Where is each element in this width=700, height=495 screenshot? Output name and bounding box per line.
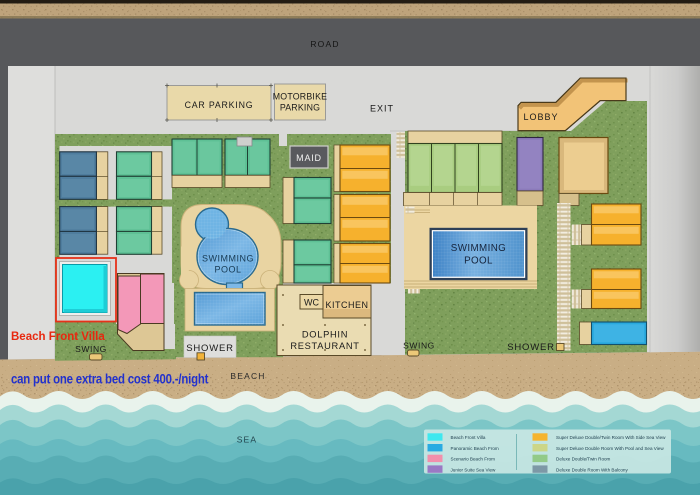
svg-text:DOLPHIN: DOLPHIN bbox=[302, 330, 348, 340]
svg-text:WC: WC bbox=[304, 298, 319, 308]
svg-text:Deluxe Double Room With Balcon: Deluxe Double Room With Balcony bbox=[556, 467, 628, 472]
svg-text:Super Deluxe Double/Twin Room: Super Deluxe Double/Twin Room With Side … bbox=[556, 435, 666, 440]
svg-text:LOBBY: LOBBY bbox=[523, 112, 558, 122]
svg-text:SHOWER: SHOWER bbox=[186, 343, 234, 354]
svg-text:Panoramic Beach From: Panoramic Beach From bbox=[451, 446, 499, 451]
svg-text:EXIT: EXIT bbox=[370, 104, 394, 114]
svg-text:SWING: SWING bbox=[403, 341, 435, 351]
svg-text:SWING: SWING bbox=[75, 344, 107, 354]
svg-text:Junior Suite Sea View: Junior Suite Sea View bbox=[451, 467, 497, 472]
svg-text:BEACH: BEACH bbox=[230, 371, 265, 381]
svg-text:KITCHEN: KITCHEN bbox=[325, 300, 368, 310]
svg-text:SHOWER: SHOWER bbox=[507, 342, 555, 353]
svg-text:Scenario Beach From: Scenario Beach From bbox=[451, 457, 496, 462]
svg-text:Deluxe Double/Twin Room: Deluxe Double/Twin Room bbox=[556, 457, 611, 462]
svg-text:MOTORBIKE: MOTORBIKE bbox=[273, 92, 327, 102]
svg-text:SWIMMING: SWIMMING bbox=[451, 243, 506, 254]
svg-text:MAID: MAID bbox=[296, 153, 322, 163]
svg-text:RESTAURANT: RESTAURANT bbox=[290, 341, 359, 351]
svg-text:Super Deluxe Double Room With: Super Deluxe Double Room With Pool and S… bbox=[556, 446, 664, 451]
svg-text:ROAD: ROAD bbox=[310, 39, 339, 49]
svg-text:Beach Front Villa: Beach Front Villa bbox=[11, 331, 105, 343]
svg-text:SWIMMING: SWIMMING bbox=[202, 254, 254, 264]
svg-text:can put one extra bed cost 400: can put one extra bed cost 400.-/night bbox=[11, 370, 209, 387]
svg-text:Beach Front Villa: Beach Front Villa bbox=[451, 435, 486, 440]
svg-text:PARKING: PARKING bbox=[280, 103, 320, 113]
svg-text:POOL: POOL bbox=[214, 265, 241, 275]
svg-text:POOL: POOL bbox=[464, 256, 493, 267]
svg-text:CAR PARKING: CAR PARKING bbox=[185, 100, 254, 110]
svg-text:SEA: SEA bbox=[237, 435, 258, 445]
